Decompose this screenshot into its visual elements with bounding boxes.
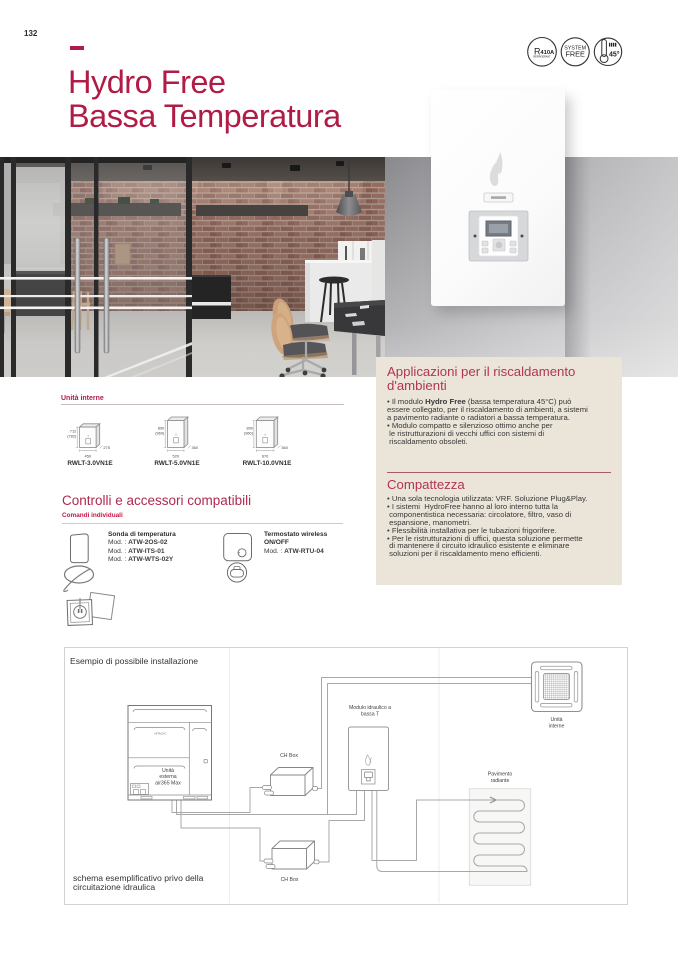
svg-text:bassa T: bassa T (361, 712, 380, 718)
svg-text:275: 275 (103, 445, 110, 450)
svg-text:CH Box: CH Box (281, 877, 299, 883)
svg-text:(960): (960) (244, 430, 254, 435)
svg-text:REFRIGERANT: REFRIGERANT (533, 56, 551, 59)
svg-text:520: 520 (173, 454, 180, 459)
svg-text:Pavimento: Pavimento (488, 772, 513, 778)
svg-text:360: 360 (192, 445, 199, 450)
svg-text:450: 450 (85, 454, 92, 459)
svg-text:CH Box: CH Box (280, 753, 298, 759)
svg-text:radiante: radiante (491, 778, 510, 784)
svg-text:HITACHI: HITACHI (155, 732, 166, 736)
svg-text:670: 670 (262, 454, 269, 459)
svg-text:(960): (960) (155, 430, 165, 435)
svg-text:interne: interne (549, 724, 565, 730)
svg-text:FREE: FREE (565, 49, 585, 58)
svg-text:360: 360 (281, 445, 288, 450)
svg-text:Unità: Unità (550, 717, 562, 723)
svg-text:air365 Max: air365 Max (155, 781, 181, 787)
svg-text:Modulo idraulico a: Modulo idraulico a (349, 705, 391, 711)
svg-text:45°: 45° (609, 51, 620, 59)
svg-text:(782): (782) (67, 433, 77, 438)
svg-text:esterna: esterna (159, 774, 176, 780)
